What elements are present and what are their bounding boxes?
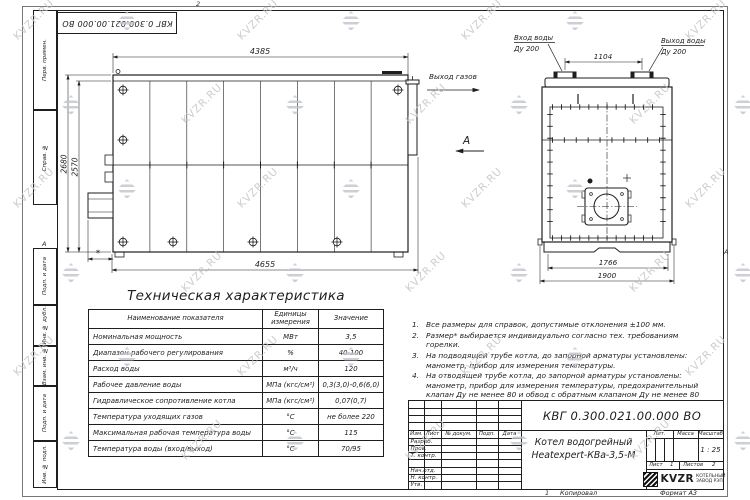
spec-row: Диапазон рабочего регулирования % 40-100: [89, 344, 383, 360]
spec-row: Гидравлическое сопротивление котла МПа (…: [89, 392, 383, 408]
tb-sheets-value: 2: [712, 462, 716, 468]
spec-cell: Температура воды (вход/выход): [89, 440, 263, 456]
stamp-podp-data-1: Подп. и дата: [33, 248, 57, 305]
tb-role-tkontr: Т. контр.: [411, 453, 437, 459]
zone-mark-top: 2: [196, 0, 200, 8]
spec-cell: 40-100: [319, 344, 383, 360]
burner-bracket: [88, 155, 113, 218]
tb-product-name-2: Heatexpert-КВа-3,5-М: [521, 445, 646, 465]
note-text: На подводящей трубе котла, до запорной а…: [426, 351, 704, 370]
spec-cell: 115: [319, 424, 383, 440]
spec-row: Расход воды м³/ч 120: [89, 360, 383, 376]
water-outlet-dn: Ду 200: [660, 48, 687, 56]
spec-cell: Номинальная мощность: [89, 328, 263, 344]
tb-role-nachotd: Нач.отд.: [411, 468, 436, 474]
gas-duct: [406, 76, 419, 155]
stamp-label: Инв. № подл.: [42, 445, 48, 484]
tb-mass-label: Масса: [673, 430, 698, 438]
tb-company: KVZR КОТЕЛЬНЫЙ ЗАВОД РЭП: [646, 469, 723, 489]
stamp-inv-dubl: Инв. № дубл.: [33, 305, 57, 346]
spec-header-cell: Единицы измерения: [263, 310, 319, 328]
stamp-vzam-inv: Взам. инв. №: [33, 346, 57, 386]
spec-cell: Рабочее давление воды: [89, 376, 263, 392]
spec-cell: 120: [319, 360, 383, 376]
notes-list: 1. Все размеры для справок, допустимые о…: [412, 320, 704, 411]
tb-line: [409, 415, 521, 416]
note-number: 2.: [412, 331, 426, 350]
note-text: Все размеры для справок, допустимые откл…: [426, 320, 704, 329]
spec-cell: МВт: [263, 328, 319, 344]
dim-4655: 4655: [255, 260, 275, 269]
tb-doc-number: КВГ 0.300.021.00.000 ВО: [521, 401, 723, 430]
stamp-inv-podl: Инв. № подл.: [33, 441, 57, 488]
spec-title: Техническая характеристика: [88, 288, 384, 304]
kvzr-logo-text: KVZR: [660, 473, 694, 485]
spec-cell: Гидравлическое сопротивление котла: [89, 392, 263, 408]
side-view-dimensions: [65, 53, 418, 273]
tb-col-dokum: № докум.: [441, 430, 476, 438]
spec-cell: 70/95: [319, 440, 383, 456]
tb-scale-value: 1 : 25: [698, 438, 723, 461]
tb-line: [655, 438, 656, 461]
spec-table: Наименование показателя Единицы измерени…: [88, 309, 384, 457]
dim-1766: 1766: [599, 258, 618, 267]
water-inlet-label: Вход воды: [514, 34, 554, 42]
tb-col-data: Дата: [498, 430, 521, 438]
technical-characteristics: Техническая характеристика Наименование …: [88, 288, 384, 457]
note-item: 3. На подводящей трубе котла, до запорно…: [412, 351, 704, 370]
stamp-label: Взам. инв. №: [42, 347, 48, 385]
note-item: 1. Все размеры для справок, допустимые о…: [412, 320, 704, 329]
spec-cell: 3,5: [319, 328, 383, 344]
end-view-drawing: 1104 1766 1900 Вход воды Ду 200 Выход во…: [498, 28, 738, 296]
dim-asterisk: *: [96, 249, 101, 259]
dim-2570: 2570: [71, 157, 80, 176]
spec-cell: %: [263, 344, 319, 360]
tb-line: [679, 461, 680, 469]
footer-format-label: Формат А3: [660, 489, 697, 497]
kvzr-company-name: КОТЕЛЬНЫЙ ЗАВОД РЭП: [696, 474, 726, 485]
spec-cell: 0,3(3,0)-0,6(6,0): [319, 376, 383, 392]
tb-sheet-value: 1: [670, 462, 674, 468]
spec-cell: Диапазон рабочего регулирования: [89, 344, 263, 360]
stamp-label: Подп. и дата: [42, 394, 48, 432]
tb-role-utv: Утв.: [411, 482, 423, 488]
spec-cell: м³/ч: [263, 360, 319, 376]
note-item: 2. Размер* выбирается индивидуально согл…: [412, 331, 704, 350]
water-inlet-dn: Ду 200: [513, 45, 540, 53]
stamp-label: Справ. №: [42, 144, 48, 171]
spec-cell: 0,07(0,7): [319, 392, 383, 408]
dim-1900: 1900: [598, 271, 617, 280]
kvzr-company-line2: ЗАВОД РЭП: [696, 479, 726, 484]
tb-line: [664, 438, 665, 461]
watermark-logo-icon: [733, 431, 750, 451]
dim-2680: 2680: [60, 154, 69, 173]
water-outlet-label: Выход воды: [661, 37, 706, 45]
tb-line: [409, 481, 521, 482]
tb-role-razrab: Разраб.: [411, 439, 433, 445]
drawing-sheet: Перв. примен. Справ. № Подп. и дата Инв.…: [0, 0, 750, 500]
side-view-drawing: 4385 4655 2680 2570 * Выход газов А: [60, 40, 490, 285]
gas-outlet-label: Выход газов: [429, 72, 477, 81]
tb-col-podp: Подп.: [476, 430, 498, 438]
tb-line: [409, 408, 521, 409]
tb-sheet-label: Лист: [649, 462, 663, 468]
spec-row: Номинальная мощность МВт 3,5: [89, 328, 383, 344]
stamp-label: Инв. № дубл.: [42, 306, 48, 344]
spec-header-cell: Наименование показателя: [89, 310, 263, 328]
note-text: Размер* выбирается индивидуально согласн…: [426, 331, 704, 350]
tb-role-prov: Пров.: [411, 446, 427, 452]
spec-header-row: Наименование показателя Единицы измерени…: [89, 310, 383, 328]
stamp-sprav-no: Справ. №: [33, 110, 57, 205]
spec-cell: Максимальная рабочая температура воды: [89, 424, 263, 440]
zone-mark-bottom: 1: [545, 489, 549, 497]
footer-copy-label: Копировал: [560, 489, 597, 497]
spec-header-cell: Значение: [319, 310, 383, 328]
spec-cell: °С: [263, 440, 319, 456]
stamp-label: Подп. и дата: [42, 257, 48, 295]
dim-1104: 1104: [594, 52, 613, 61]
spec-cell: °С: [263, 424, 319, 440]
kvzr-logo-icon: [643, 472, 658, 487]
stamp-label: Перв. примен.: [42, 39, 48, 81]
title-block: Изм. Лист № докум. Подп. Дата Разраб. Пр…: [408, 400, 724, 490]
spec-row: Максимальная рабочая температура воды °С…: [89, 424, 383, 440]
tb-scale-label: Масштаб: [698, 430, 723, 438]
stamp-perv-primen: Перв. примен.: [33, 10, 57, 110]
dim-4385: 4385: [250, 47, 270, 56]
stamp-podp-data-2: Подп. и дата: [33, 386, 57, 441]
spec-row: Температура воды (вход/выход) °С 70/95: [89, 440, 383, 456]
tb-role-nkontr: Н. контр.: [411, 475, 438, 481]
spec-cell: Температура уходящих газов: [89, 408, 263, 424]
spec-cell: МПа (кгс/см²): [263, 376, 319, 392]
tb-sheets-label: Листов: [683, 462, 703, 468]
top-doc-stamp-text: КВГ 0.300.021.00.000 ВО: [62, 19, 173, 28]
top-doc-stamp: КВГ 0.300.021.00.000 ВО: [57, 12, 177, 34]
tb-lit-label: Лит.: [646, 430, 673, 438]
spec-row: Рабочее давление воды МПа (кгс/см²) 0,3(…: [89, 376, 383, 392]
view-letter-a: А: [462, 135, 470, 147]
tb-line: [409, 422, 521, 423]
tb-col-izm: Изм.: [409, 430, 424, 438]
note-number: 1.: [412, 320, 426, 329]
spec-row: Температура уходящих газов °С не более 2…: [89, 408, 383, 424]
tb-col-list: Лист: [424, 430, 441, 438]
spec-cell: МПа (кгс/см²): [263, 392, 319, 408]
spec-cell: Расход воды: [89, 360, 263, 376]
note-number: 3.: [412, 351, 426, 370]
zone-mark-left: А: [42, 240, 46, 248]
spec-cell: °С: [263, 408, 319, 424]
boiler-body-side: [113, 70, 408, 258]
spec-cell: не более 220: [319, 408, 383, 424]
tb-line: [409, 459, 521, 460]
